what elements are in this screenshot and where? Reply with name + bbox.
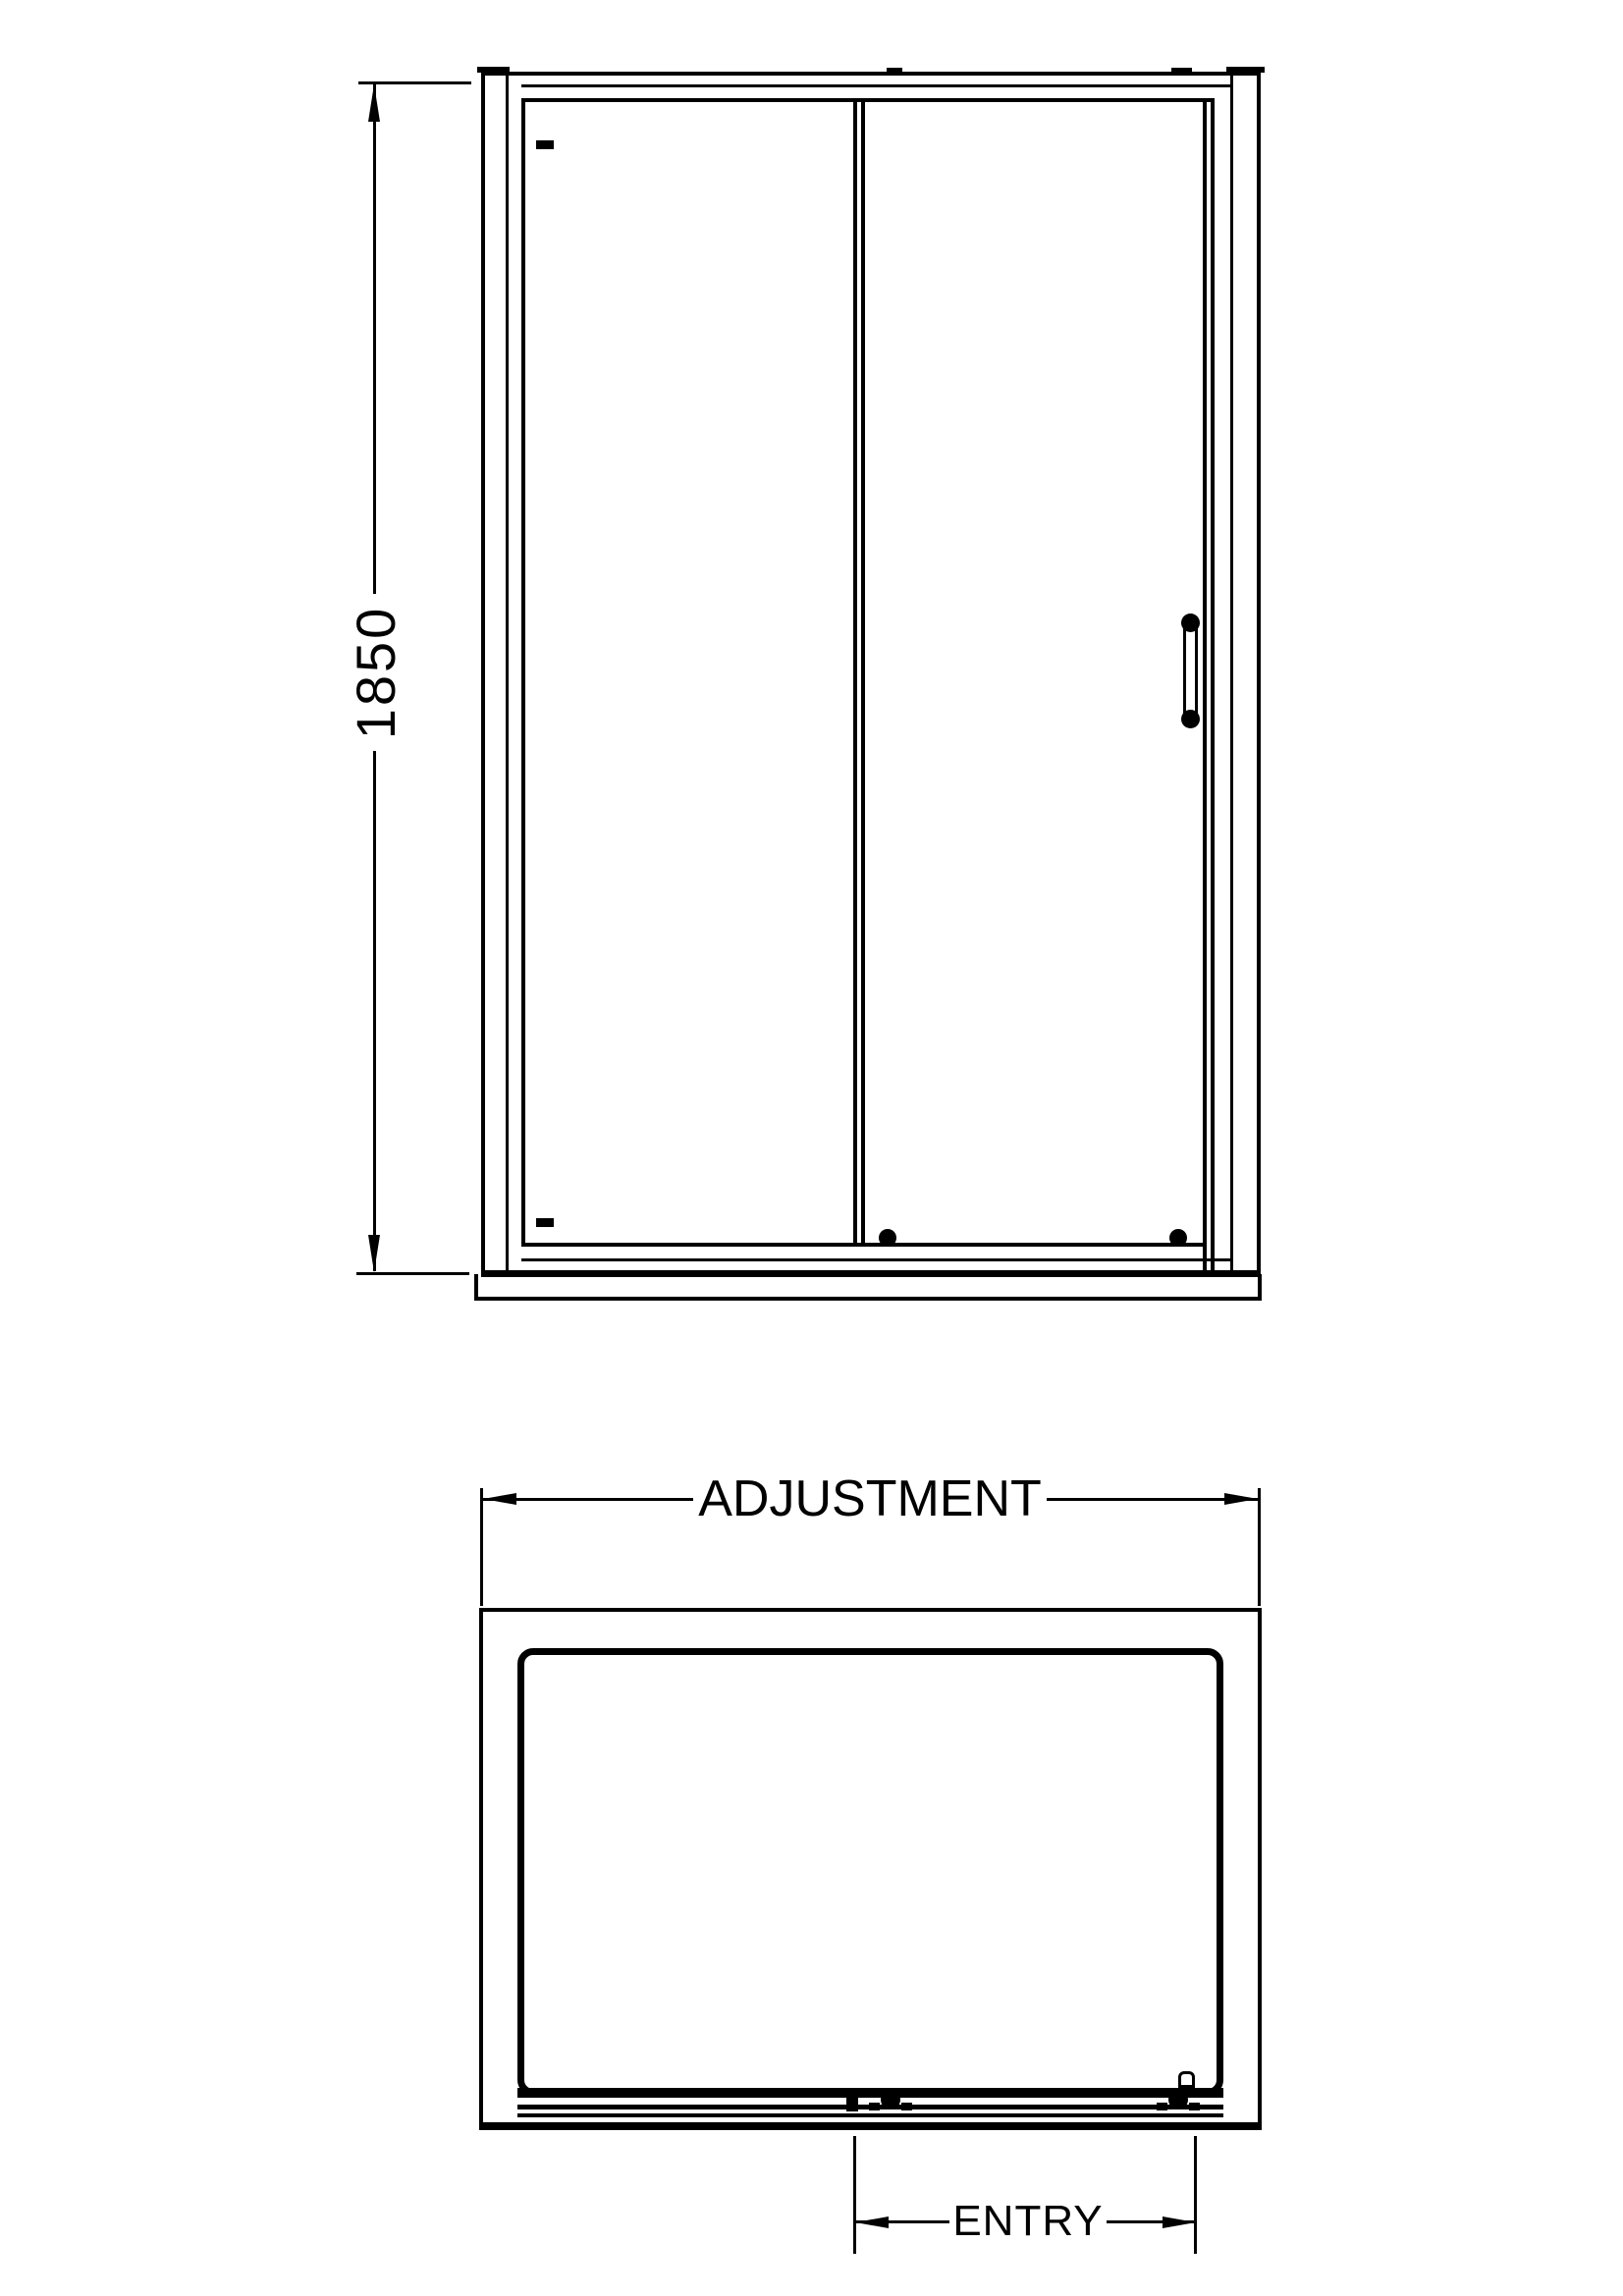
extension-line-right xyxy=(1194,2136,1197,2254)
arrowhead-right-icon xyxy=(1163,2216,1196,2228)
roller-bracket xyxy=(869,2103,880,2110)
extension-line-left xyxy=(853,2136,856,2254)
dimension-line-upper xyxy=(373,84,376,601)
top-rail-inner-line xyxy=(521,98,1215,102)
plan-panel-line xyxy=(517,2088,1223,2098)
plan-track-line xyxy=(517,2113,1223,2117)
top-rail-outer-line xyxy=(481,72,1261,76)
top-rail-mid-line xyxy=(521,84,1230,87)
sliding-panel-stile-line xyxy=(1203,100,1207,1274)
roller-bracket xyxy=(1189,2103,1200,2110)
handle-bar xyxy=(1183,620,1198,721)
top-roller-bracket xyxy=(1171,68,1192,76)
roller-bracket xyxy=(1157,2103,1167,2110)
roller-bracket xyxy=(901,2103,912,2110)
plan-door-handle xyxy=(1178,2071,1195,2088)
plan-track-outer-line xyxy=(479,2122,1262,2130)
plan-roller xyxy=(881,2090,900,2109)
drawing-sheet: 1850 xyxy=(0,0,1623,2296)
bottom-rail-inner-line xyxy=(521,1243,1203,1247)
arrowhead-down-icon xyxy=(368,1235,380,1272)
fixed-panel-end-cap xyxy=(846,2088,858,2111)
bottom-rail-outer-line xyxy=(481,1270,1261,1277)
handle-knob xyxy=(1181,710,1200,728)
extension-line-bottom xyxy=(356,1272,469,1275)
plan-tray-inner-edge xyxy=(517,1648,1223,2096)
height-dimension-label: 1850 xyxy=(297,594,454,751)
panel-clip xyxy=(536,1218,554,1227)
wall-profile-right-inner xyxy=(1230,73,1233,1274)
tray-bottom-edge xyxy=(474,1297,1262,1301)
handle-knob xyxy=(1181,614,1200,632)
fixed-panel-left-edge xyxy=(521,98,525,1247)
extension-line-left xyxy=(480,1488,483,1606)
adjustment-dimension-label: ADJUSTMENT xyxy=(693,1470,1047,1527)
entry-dimension-label: ENTRY xyxy=(949,2196,1107,2247)
extension-line-right xyxy=(1258,1488,1261,1606)
panel-divider-line xyxy=(861,100,865,1245)
wall-profile-left-outer xyxy=(481,72,485,1275)
bottom-rail-mid-line xyxy=(521,1258,1230,1261)
plan-roller xyxy=(1168,2090,1188,2109)
top-roller-bracket xyxy=(887,68,902,76)
arrowhead-left-icon xyxy=(855,2216,889,2228)
panel-clip xyxy=(536,140,554,149)
arrowhead-left-icon xyxy=(483,1493,516,1505)
panel-divider-line xyxy=(853,100,857,1245)
dimension-line-lower xyxy=(373,744,376,1271)
arrowhead-up-icon xyxy=(368,84,380,122)
wall-profile-right-outer xyxy=(1257,73,1261,1274)
wall-profile-left-inner xyxy=(506,72,509,1275)
arrowhead-right-icon xyxy=(1224,1493,1258,1505)
sliding-panel-stile-line xyxy=(1211,100,1215,1274)
